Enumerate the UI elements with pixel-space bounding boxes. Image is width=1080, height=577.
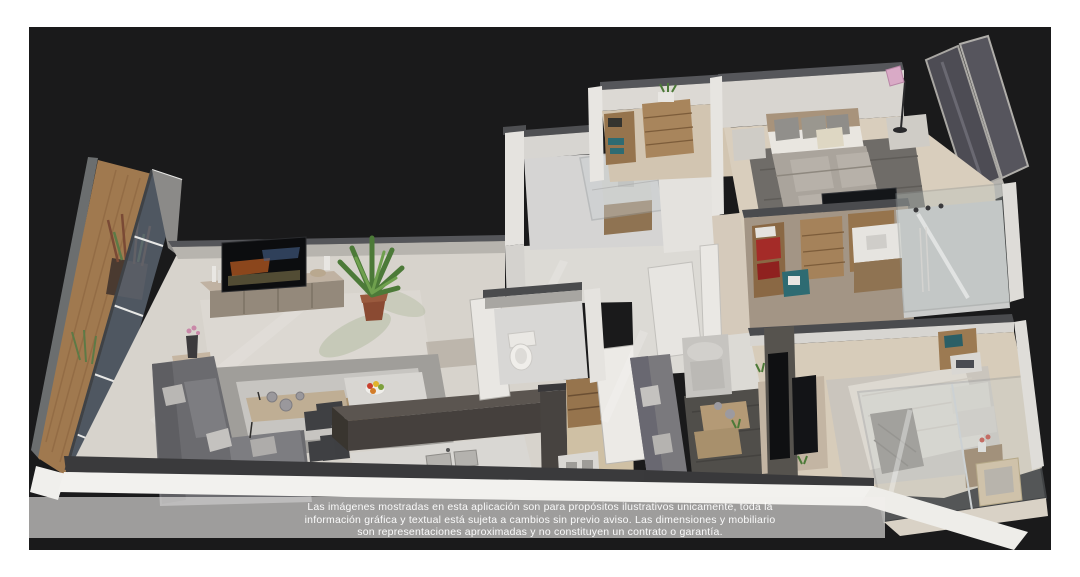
floorplan-render — [0, 0, 1080, 577]
shower-fixture — [914, 208, 919, 213]
washer-red — [756, 237, 781, 261]
decor-vase — [324, 256, 330, 270]
coffee-table — [700, 401, 750, 433]
table-vase — [267, 392, 277, 402]
family-tv — [768, 352, 790, 460]
nightstand — [732, 127, 766, 161]
guest-bath-floor — [494, 301, 588, 385]
teal-towels — [608, 138, 624, 145]
bar-stool — [304, 409, 332, 431]
sofa-pillow — [162, 384, 186, 406]
candle — [212, 266, 216, 282]
bedroom2-tv — [792, 375, 818, 455]
disclaimer-bar — [29, 497, 885, 538]
nightstand — [886, 114, 930, 150]
floorplan-3d-viewport[interactable] — [0, 0, 1080, 577]
decor-tray — [310, 269, 326, 277]
faucet — [446, 448, 450, 452]
bed-pillow-cream — [816, 127, 844, 149]
wardrobe-chest — [642, 99, 694, 158]
dark-vase — [186, 335, 198, 358]
bed-pillow — [774, 117, 800, 141]
hall-wall — [505, 131, 524, 246]
bar-stool — [308, 439, 336, 462]
kitchen-sink — [454, 450, 478, 468]
shower-glass — [896, 184, 1010, 312]
app-window: Las imágenes mostradas en esta aplicació… — [0, 0, 1080, 577]
sofa-pillow — [640, 385, 661, 407]
